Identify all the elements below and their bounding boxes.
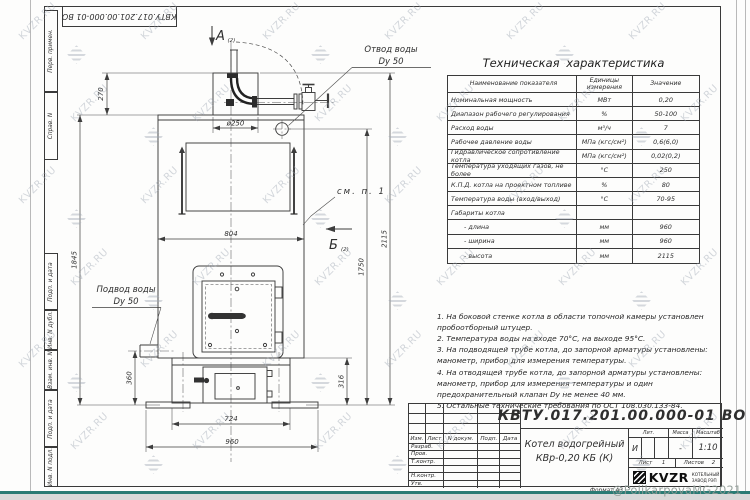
table-row: Расход водым³/ч7 [448,121,699,135]
table-cell: 250 [633,164,699,177]
lit-cell-3 [655,438,668,458]
table-row: - длинамм960 [448,220,699,234]
title-block-cell [444,466,479,472]
title-block-cell [478,481,500,488]
sheet-row: Лист 1 Листов 2 [629,459,723,468]
table-row: Рабочее давление водыМПа (кгс/см²)0,6(6,… [448,135,699,149]
title-block-cell [444,481,479,488]
table-row: Габариты котла [448,206,699,220]
table-cell: % [577,178,633,191]
title-block-cell [478,473,500,479]
scale-label: Масштаб [693,429,723,437]
table-cell: Температура уходящих газов, не более [448,164,577,177]
title-block-cell [444,414,479,423]
view-a-sheet: (2) [228,38,236,44]
dim-360: 360 [126,371,134,385]
see-note-label: см. п. 1 [337,187,386,197]
table-cell: °С [577,164,633,177]
title-block-cell [478,451,500,457]
outlet-dn-label: Dy 50 [378,57,403,67]
upper-panel [179,143,298,214]
table-cell: мм [577,249,633,263]
view-b-label: Б [329,238,338,253]
view-a-label: А [215,29,225,44]
lit-cells: И [629,438,669,458]
lit-cell-2 [642,438,655,458]
upper-door [193,266,283,358]
base-section [146,358,318,408]
title-block-cell [500,424,520,433]
table-cell: 0,02(0,2) [633,150,699,163]
tech-table-title: Техническая характеристика [447,56,700,70]
logo-caption-line2: ЗАВОД РЭП [692,478,719,483]
title-block-cell [444,444,479,450]
table-row: Температура воды (вход/выход)°С70-95 [448,192,699,206]
title-block-cell [500,466,520,472]
sheet-value: 1 [662,460,665,466]
inlet-dn-label: Dy 50 [113,297,138,307]
dim-1845: 1845 [71,251,79,269]
table-cell: - высота [448,249,577,263]
dim-316: 316 [338,374,346,388]
table-row: Гидравлическое сопротивление котлаМПа (к… [448,150,699,164]
table-cell [633,206,699,219]
dim-270: 270 [97,87,105,101]
outlet-label: Отвод воды [364,45,418,55]
title-block-cell: N докум. [444,434,479,443]
table-cell: 960 [633,220,699,233]
title-block-cell [478,466,500,472]
drawing-sheet: Перв. примен.Справ. NПодп. и датаИнв. N … [0,0,750,500]
table-cell: Расход воды [448,121,577,134]
product-title-line2: КВр-0,20 КБ (К) [521,452,628,466]
title-block-cell [478,444,500,450]
dim-2115: 2115 [381,230,389,248]
sheet-label: Лист [639,460,653,466]
dimensions: 270 ø250 804 1845 360 316 1750 [71,73,396,452]
table-cell: Номинальная мощность [448,93,577,106]
boiler-front-view: А (2) Б (2) Отвод воды Dy 50 Подвод воды… [0,0,440,480]
table-row: Температура уходящих газов, не более°С25… [448,164,699,178]
title-block-cell [500,473,520,479]
table-cell: Рабочее давление воды [448,135,577,148]
dim-960: 960 [225,438,239,446]
table-cell: МПа (кгс/см²) [577,150,633,163]
table-cell: 0,6(6,0) [633,135,699,148]
title-block-cell: Подп. [478,434,500,443]
inlet-label: Подвод воды [96,285,155,295]
table-cell: 2115 [633,249,699,263]
tech-header-units: Единицы измерения [577,76,633,92]
title-block-cell [478,424,500,433]
tech-header-name: Наименование показателя [448,76,577,92]
boiler-body [140,42,328,358]
table-cell: К.П.Д. котла на проектном топливе [448,178,577,191]
tech-table-body: Номинальная мощностьМВт0,20Диапазон рабо… [448,93,699,263]
title-block: Изм.ЛистN докум.Подп.ДатаРазраб.Пров.Т.к… [408,403,722,487]
table-row: Диапазон рабочего регулирования%50-100 [448,107,699,121]
kvzr-logo-caption: КОТЕЛЬНЫЙ ЗАВОД РЭП [692,472,719,483]
title-block-cell [444,404,479,413]
title-block-cell [444,451,479,457]
note-item: 4. На отводящей трубе котла, до запорной… [437,367,733,400]
title-block-cell [444,424,479,433]
view-b-sheet: (2) [341,247,349,253]
note-item: 2. Температура воды на входе 70°С, на вы… [437,333,733,344]
paper-edge-right2 [745,0,746,500]
table-row: - высотамм2115 [448,249,699,263]
table-cell: м³/ч [577,121,633,134]
dim-250: ø250 [226,120,245,128]
table-cell: Диапазон рабочего регулирования [448,107,577,120]
table-cell: Габариты котла [448,206,577,219]
title-block-cell: Утв. [409,481,444,488]
table-cell: 50-100 [633,107,699,120]
lit-mass-scale-header: Лит. Масса Масштаб [629,429,723,438]
tech-table: Наименование показателя Единицы измерени… [447,75,700,264]
table-cell: - длина [448,220,577,233]
table-cell: Гидравлическое сопротивление котла [448,150,577,163]
table-cell: °С [577,192,633,205]
technical-notes: 1. На боковой стенке котла в области топ… [437,311,733,411]
tech-header-value: Значение [633,76,699,92]
lit-label: Лит. [629,429,669,437]
dim-1750: 1750 [358,258,366,276]
note-item: 3. На подводящей трубе котла, до запорно… [437,344,733,366]
view-markers: А (2) Б (2) [209,26,352,253]
note-item: 1. На боковой стенке котла в области топ… [437,311,733,333]
title-block-cell [500,444,520,450]
table-cell: 0,20 [633,93,699,106]
table-cell: МПа (кгс/см²) [577,135,633,148]
mass-label: Масса [669,429,693,437]
table-cell: % [577,107,633,120]
paper-edge-right [736,0,737,500]
title-block-cell [478,459,500,465]
sheets-value: 2 [712,460,715,466]
mass-value: - [669,438,693,458]
dim-724: 724 [224,415,237,423]
title-block-cell [500,459,520,465]
logo-caption-line1: КОТЕЛЬНЫЙ [692,472,719,477]
document-number: КВТУ.017.201.00.000-01 ВО [521,404,723,429]
table-row: К.П.Д. котла на проектном топливе%80 [448,178,699,192]
table-cell: 80 [633,178,699,191]
scale-value: 1:10 [693,438,723,458]
table-cell: 960 [633,235,699,248]
title-block-cell [500,481,520,488]
dim-804: 804 [224,230,237,238]
title-block-row: Утв. [409,481,520,488]
table-row: Номинальная мощностьМВт0,20 [448,93,699,107]
table-cell: 70-95 [633,192,699,205]
tech-table-header: Наименование показателя Единицы измерени… [448,76,699,93]
sheets-cell: Листов 2 [676,459,723,467]
product-title: Котел водогрейный КВр-0,20 КБ (К) [521,429,629,488]
sheets-label: Листов [684,460,704,466]
title-block-cell [444,473,479,479]
table-cell: мм [577,220,633,233]
lit-mass-scale-values: И - 1:10 [629,438,723,459]
title-block-cell: Дата [500,434,520,443]
sheet-cell: Лист 1 [629,459,676,467]
table-row: - ширинамм960 [448,235,699,249]
table-cell: - ширина [448,235,577,248]
credit-watermark: @PolikarpovaMG2021 [612,483,742,497]
table-cell: 7 [633,121,699,134]
lit-value: И [629,438,642,458]
table-cell: Температура воды (вход/выход) [448,192,577,205]
title-block-cell [444,459,479,465]
table-cell: мм [577,235,633,248]
title-block-cell [500,451,520,457]
table-cell [577,206,633,219]
table-cell: МВт [577,93,633,106]
product-title-line1: Котел водогрейный [521,438,628,452]
callout-labels: Отвод воды Dy 50 Подвод воды Dy 50 см. п… [92,45,431,344]
title-block-right: Лит. Масса Масштаб И - 1:10 Лист 1 [629,429,723,488]
